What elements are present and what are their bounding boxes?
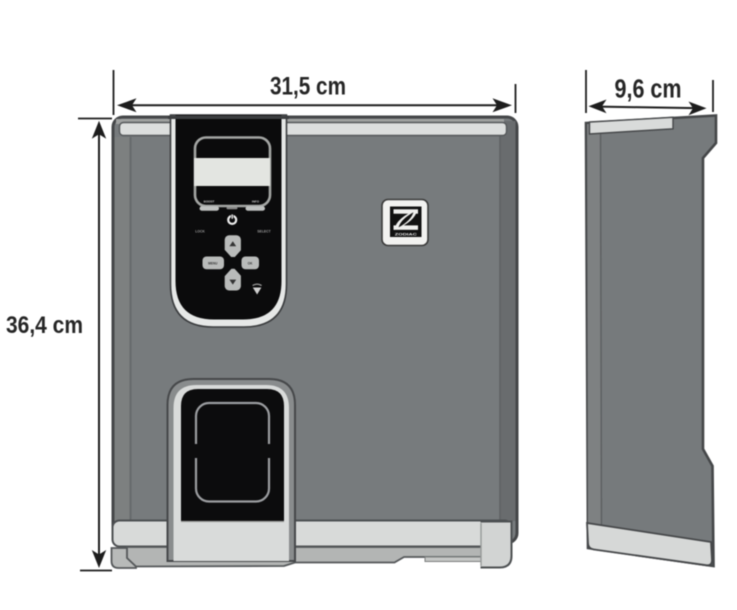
svg-text:OK: OK <box>248 261 253 265</box>
svg-text:LOCK: LOCK <box>195 230 205 234</box>
svg-text:SELECT: SELECT <box>257 230 271 234</box>
svg-text:BOOST: BOOST <box>204 199 215 203</box>
svg-text:36,4 cm: 36,4 cm <box>6 312 83 339</box>
svg-text:9,6 cm: 9,6 cm <box>615 76 682 104</box>
svg-text:MENU: MENU <box>208 261 218 265</box>
svg-text:31,5 cm: 31,5 cm <box>270 73 346 101</box>
svg-text:ZODIAC: ZODIAC <box>395 233 417 237</box>
svg-text:INFO: INFO <box>252 199 260 203</box>
